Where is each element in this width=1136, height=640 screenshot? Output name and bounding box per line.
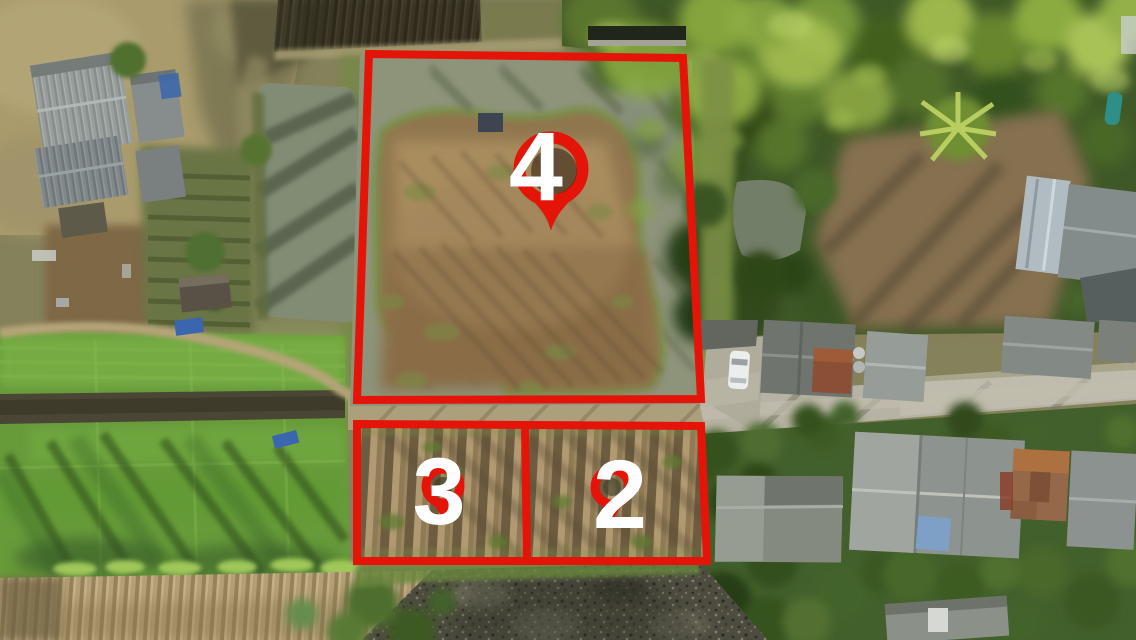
svg-text:2: 2 [593, 440, 647, 549]
svg-text:3: 3 [413, 439, 466, 545]
svg-text:4: 4 [509, 112, 563, 221]
